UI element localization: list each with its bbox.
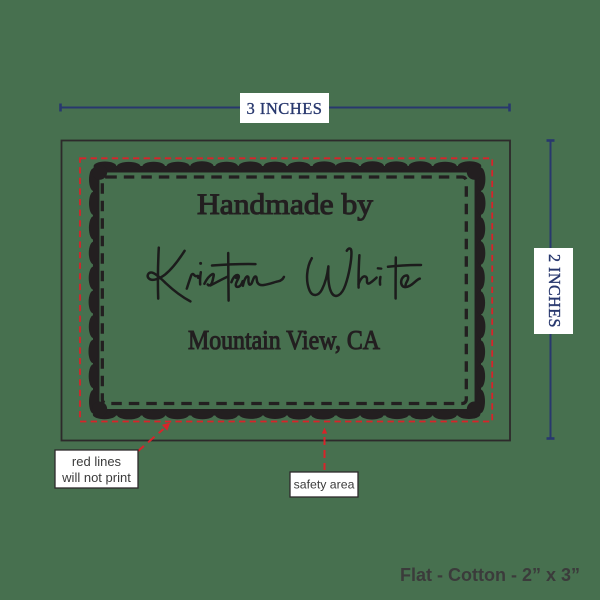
svg-text:red lines: red lines <box>72 454 122 469</box>
svg-text:Flat - Cotton - 2” x 3”: Flat - Cotton - 2” x 3” <box>400 565 580 585</box>
svg-text:2 INCHES: 2 INCHES <box>545 254 564 328</box>
svg-text:Mountain View, CA: Mountain View, CA <box>188 324 380 355</box>
svg-text:Handmade by: Handmade by <box>197 189 373 221</box>
svg-text:3 INCHES: 3 INCHES <box>247 99 323 118</box>
svg-text:safety area: safety area <box>294 478 355 492</box>
svg-text:will not print: will not print <box>61 470 131 485</box>
